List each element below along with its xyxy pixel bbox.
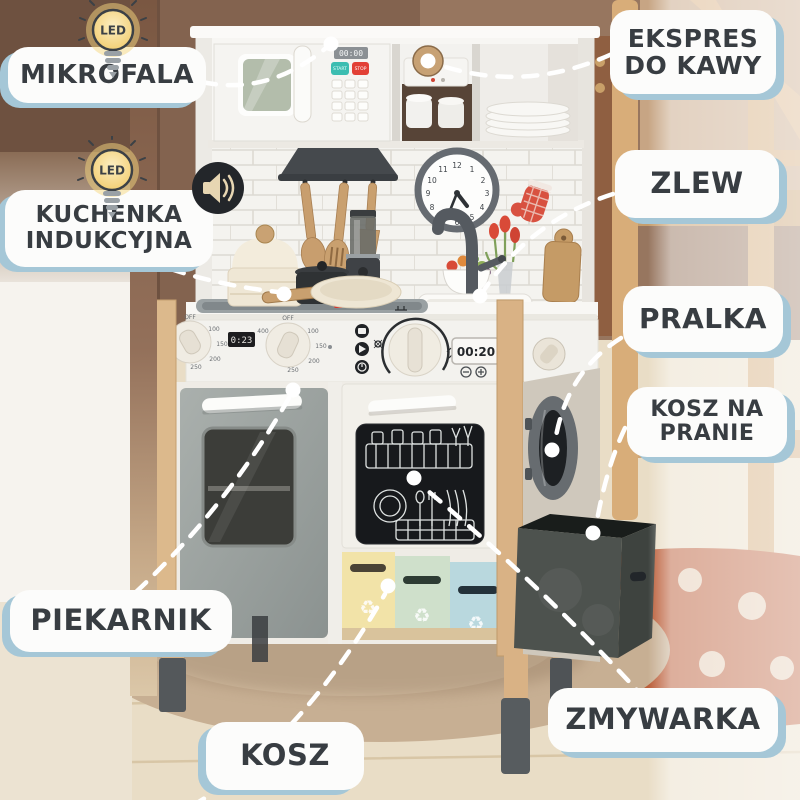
svg-text:4: 4 <box>480 203 485 212</box>
svg-text:OFF: OFF <box>282 315 294 322</box>
coffee-maker <box>392 44 480 141</box>
bulb-base <box>104 51 122 78</box>
svg-text:10: 10 <box>427 176 437 185</box>
range-hood <box>278 148 398 181</box>
svg-text:OFF: OFF <box>184 314 196 321</box>
svg-text:100: 100 <box>307 328 319 335</box>
callout-piekarnik: PIEKARNIK <box>10 590 232 652</box>
callout-ekspres-do-kawy: EKSPRES DO KAWY <box>610 10 776 94</box>
led-badge-text: LED <box>100 24 126 38</box>
led-badge-text: LED <box>99 164 125 178</box>
led-bulb-icon: LED <box>77 136 147 231</box>
callout-zmywarka: ZMYWARKA <box>548 688 778 752</box>
callout-label-line2: INDUKCYJNA <box>26 229 193 254</box>
svg-text:100: 100 <box>208 326 220 333</box>
svg-text:250: 250 <box>190 364 202 371</box>
svg-text:400: 400 <box>257 328 269 335</box>
callout-label: KOSZ <box>240 740 330 772</box>
callout-zlew: ZLEW <box>615 150 779 218</box>
callout-label-line2: DO KAWY <box>624 52 761 80</box>
callout-label-line2: PRANIE <box>660 422 755 446</box>
callout-label: ZMYWARKA <box>565 704 760 736</box>
microwave-start-button: START <box>333 66 347 72</box>
callout-pralka: PRALKA <box>623 286 783 352</box>
recycle-icon: ♻ <box>413 605 430 627</box>
sound-speaker-icon <box>190 160 246 216</box>
callout-kosz: KOSZ <box>206 722 364 790</box>
mode-icons <box>355 324 369 374</box>
svg-text:200: 200 <box>209 356 221 363</box>
callout-kosz-na-pranie: KOSZ NA PRANIE <box>627 387 787 457</box>
laundry-basket <box>514 514 656 658</box>
svg-text:2: 2 <box>481 176 486 185</box>
dishwasher: ♻ ♻ ♻ <box>328 382 502 644</box>
callout-label: PRALKA <box>639 304 767 335</box>
svg-text:3: 3 <box>485 189 490 198</box>
svg-text:0:23: 0:23 <box>231 336 253 346</box>
svg-text:12: 12 <box>452 161 462 170</box>
callout-label: ZLEW <box>650 168 743 200</box>
svg-text:250: 250 <box>287 367 299 374</box>
recycle-icon: ♻ <box>359 597 376 619</box>
microwave-display: 00:00 <box>339 49 363 58</box>
microwave: 00:00 START STOP <box>214 44 390 141</box>
svg-text:00:20: 00:20 <box>457 345 495 359</box>
svg-text:200: 200 <box>308 358 320 365</box>
callout-label-line1: EKSPRES <box>628 25 759 53</box>
svg-text:9: 9 <box>426 189 431 198</box>
callout-label: PIEKARNIK <box>30 605 211 637</box>
svg-text:150: 150 <box>216 341 228 348</box>
recycling-drawer: ♻ ♻ ♻ <box>342 552 502 640</box>
plates <box>486 102 570 137</box>
svg-text:150: 150 <box>315 343 327 350</box>
annotated-toy-kitchen-image: { "scene": { "description": "Wooden toy … <box>0 0 800 800</box>
led-bulb-icon: LED <box>78 0 148 91</box>
plate-shelf <box>480 44 578 141</box>
microwave-stop-button: STOP <box>355 66 367 72</box>
svg-text:11: 11 <box>438 165 448 174</box>
callout-label-line1: KOSZ NA <box>650 398 763 422</box>
svg-text:1: 1 <box>470 165 475 174</box>
svg-text:8: 8 <box>430 203 435 212</box>
